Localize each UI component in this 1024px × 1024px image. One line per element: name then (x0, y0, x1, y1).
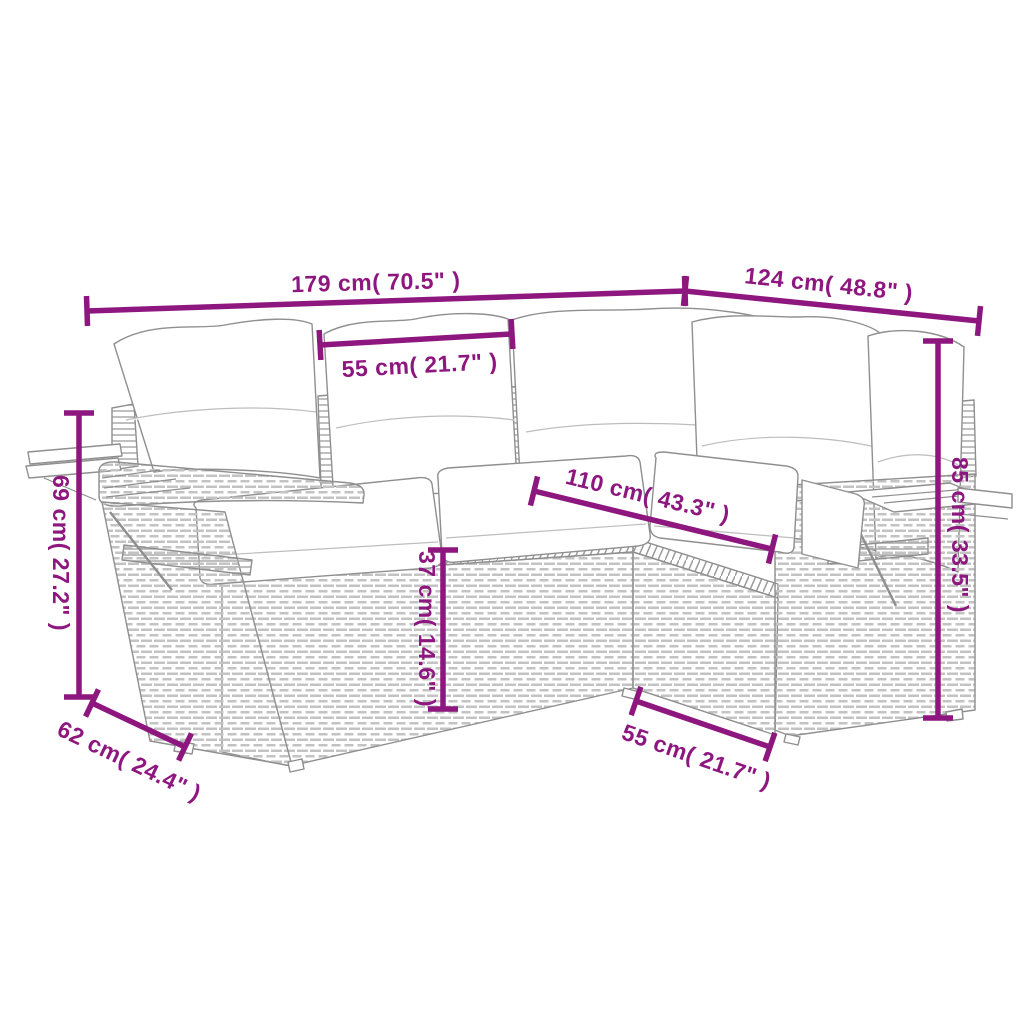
dimension-label: 37 cm( 14.6" ) (414, 551, 440, 707)
dimension-end-tick (977, 306, 980, 336)
sofa-illustration (26, 308, 1012, 772)
dimension-label: 179 cm( 70.5" ) (291, 267, 461, 297)
foot (288, 759, 304, 772)
dimension-label: 69 cm( 27.2" ) (48, 475, 74, 631)
dimension-end-tick (511, 319, 513, 349)
dimension-end-tick (683, 276, 686, 306)
dimension-end-tick (319, 330, 321, 360)
dimension-end-tick (86, 296, 87, 326)
dimension-label: 85 cm( 33.5" ) (947, 457, 973, 613)
dimension-diagram-page: 179 cm( 70.5" )124 cm( 48.8" )55 cm( 21.… (0, 0, 1024, 1024)
seat-cushion-4 (802, 480, 864, 568)
diagram-svg: 179 cm( 70.5" )124 cm( 48.8" )55 cm( 21.… (0, 0, 1024, 1024)
